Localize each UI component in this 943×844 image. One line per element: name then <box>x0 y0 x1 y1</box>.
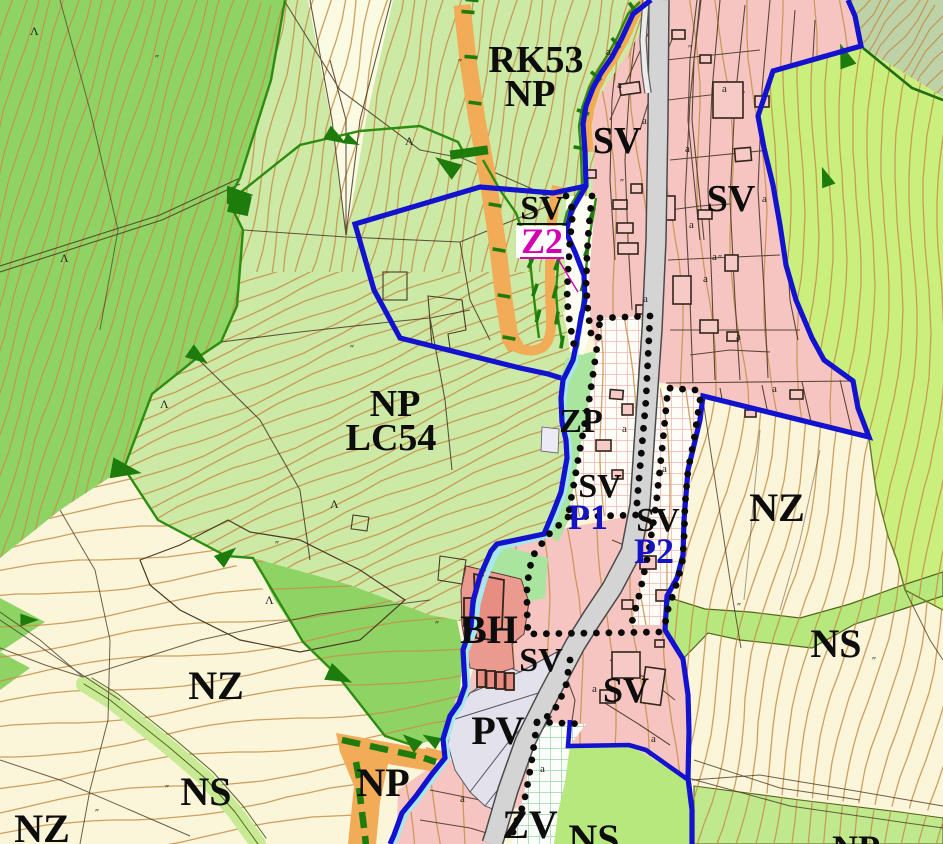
svg-text:″: ″ <box>155 54 159 65</box>
svg-text:a: a <box>772 383 777 395</box>
svg-text:a: a <box>736 331 741 343</box>
svg-text:Λ: Λ <box>330 497 339 511</box>
svg-text:NZ: NZ <box>14 806 70 844</box>
svg-text:NZ: NZ <box>188 663 244 708</box>
svg-text:″: ″ <box>688 44 692 55</box>
svg-text:″: ″ <box>350 344 354 355</box>
svg-text:BH: BH <box>460 607 518 652</box>
svg-text:NS: NS <box>810 621 861 666</box>
svg-text:ZV: ZV <box>502 802 558 844</box>
svg-text:a: a <box>617 79 622 91</box>
svg-text:a: a <box>762 193 767 205</box>
svg-text:Λ: Λ <box>265 593 274 607</box>
svg-text:a: a <box>643 293 648 305</box>
svg-text:a: a <box>592 683 597 695</box>
svg-text:″: ″ <box>718 254 722 265</box>
svg-text:PV: PV <box>471 708 524 753</box>
svg-text:Λ: Λ <box>60 251 69 265</box>
svg-text:Λ: Λ <box>30 24 39 38</box>
svg-text:NS: NS <box>568 816 619 844</box>
svg-text:SV: SV <box>519 642 563 679</box>
svg-text:a: a <box>460 793 465 805</box>
svg-text:a: a <box>689 219 694 231</box>
svg-text:a: a <box>685 143 690 155</box>
svg-text:Λ: Λ <box>160 397 169 411</box>
svg-text:a: a <box>540 763 545 775</box>
svg-text:NP: NP <box>832 828 880 844</box>
svg-text:a: a <box>703 273 708 285</box>
svg-text:SV: SV <box>603 670 649 710</box>
svg-text:a: a <box>622 423 627 435</box>
svg-text:ZP: ZP <box>559 403 602 440</box>
svg-text:Z2: Z2 <box>521 221 563 261</box>
svg-text:″: ″ <box>620 178 624 189</box>
svg-text:LC54: LC54 <box>346 417 437 459</box>
svg-text:a: a <box>606 46 611 58</box>
svg-text:″: ″ <box>737 602 741 613</box>
svg-text:a: a <box>642 115 647 127</box>
svg-text:a: a <box>722 83 727 95</box>
svg-text:NS: NS <box>180 769 231 814</box>
svg-text:P1: P1 <box>568 497 608 537</box>
svg-text:NP: NP <box>356 760 409 805</box>
svg-text:″: ″ <box>275 540 279 551</box>
svg-text:″: ″ <box>435 620 439 631</box>
svg-text:SV: SV <box>707 178 756 220</box>
svg-text:″: ″ <box>458 58 462 69</box>
svg-text:SV: SV <box>593 120 642 162</box>
svg-text:Λ: Λ <box>405 134 414 148</box>
svg-text:NP: NP <box>505 73 556 115</box>
svg-text:″: ″ <box>872 656 876 667</box>
svg-text:″: ″ <box>165 784 169 795</box>
svg-text:NZ: NZ <box>749 485 805 530</box>
svg-text:a: a <box>712 251 717 263</box>
svg-text:″: ″ <box>95 808 99 819</box>
svg-text:P2: P2 <box>634 531 674 571</box>
svg-text:a: a <box>651 733 656 745</box>
svg-text:a: a <box>662 463 667 475</box>
